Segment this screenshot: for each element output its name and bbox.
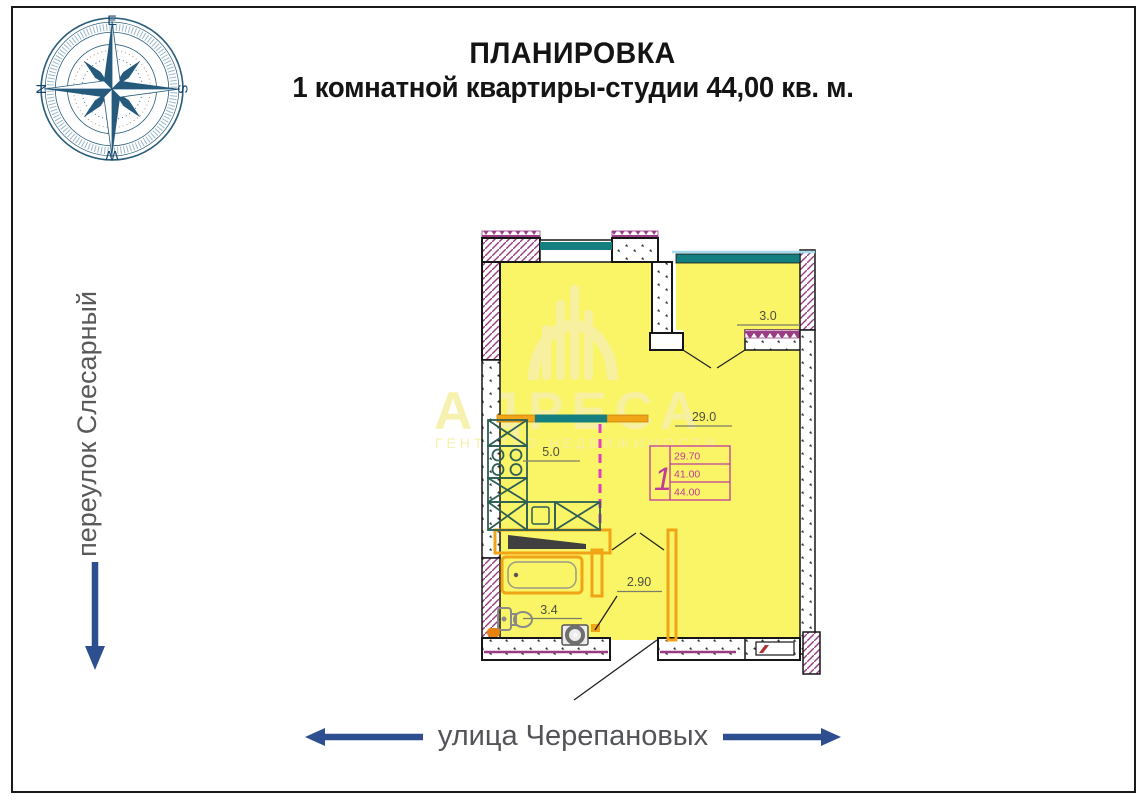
dim-bathroom: 3.4: [540, 603, 557, 617]
watermark-tagline: АГЕНТСТВО НЕДВИЖИМОСТИ: [430, 435, 718, 451]
compass-letter-south: S: [174, 84, 188, 93]
stamp-room-count: 1: [654, 461, 672, 497]
compass-letter-west: W: [105, 147, 119, 163]
compass-letter-north: N: [36, 84, 50, 94]
street-label-bottom: улица Черепановых: [0, 720, 1146, 753]
page: { "header": { "title_line1": "ПЛАНИРОВКА…: [0, 0, 1146, 800]
window-balcony-icon: [676, 254, 800, 263]
arrow-left-icon: [305, 726, 423, 748]
stamp-total-with-balcony: 44.00: [674, 487, 700, 499]
dim-kitchen: 5.0: [542, 445, 559, 459]
dim-room: 29.0: [692, 410, 716, 424]
window-room-icon: [540, 242, 612, 250]
arrow-right-icon: [723, 726, 841, 748]
vent-box-icon: [756, 642, 794, 655]
radiator-icon: [487, 628, 500, 637]
street-left-text: переулок Слесарный: [72, 291, 103, 557]
stamp-total-area: 41.00: [674, 469, 700, 481]
street-bottom-text: улица Черепановых: [438, 720, 708, 753]
arrow-down-icon: [82, 562, 108, 670]
glass-partition-icon: [535, 415, 607, 423]
floor-plan: АДРЕСА АГЕНТСТВО НЕДВИЖИМОСТИ: [430, 228, 830, 708]
watermark-brand: АДРЕСА: [434, 382, 706, 441]
washing-machine-icon: [562, 625, 588, 645]
dim-balcony: 3.0: [759, 309, 776, 323]
title-line2: 1 комнатной квартиры-студии 44,00 кв. м.: [29, 71, 1118, 105]
compass-letter-east: E: [107, 13, 116, 29]
title-line1: ПЛАНИРОВКА: [470, 36, 676, 71]
stamp-living-area: 29.70: [674, 451, 700, 463]
street-label-left: переулок Слесарный: [64, 276, 110, 572]
compass-rose-icon: E S W N: [36, 13, 188, 165]
dim-hallway: 2.90: [627, 575, 651, 589]
